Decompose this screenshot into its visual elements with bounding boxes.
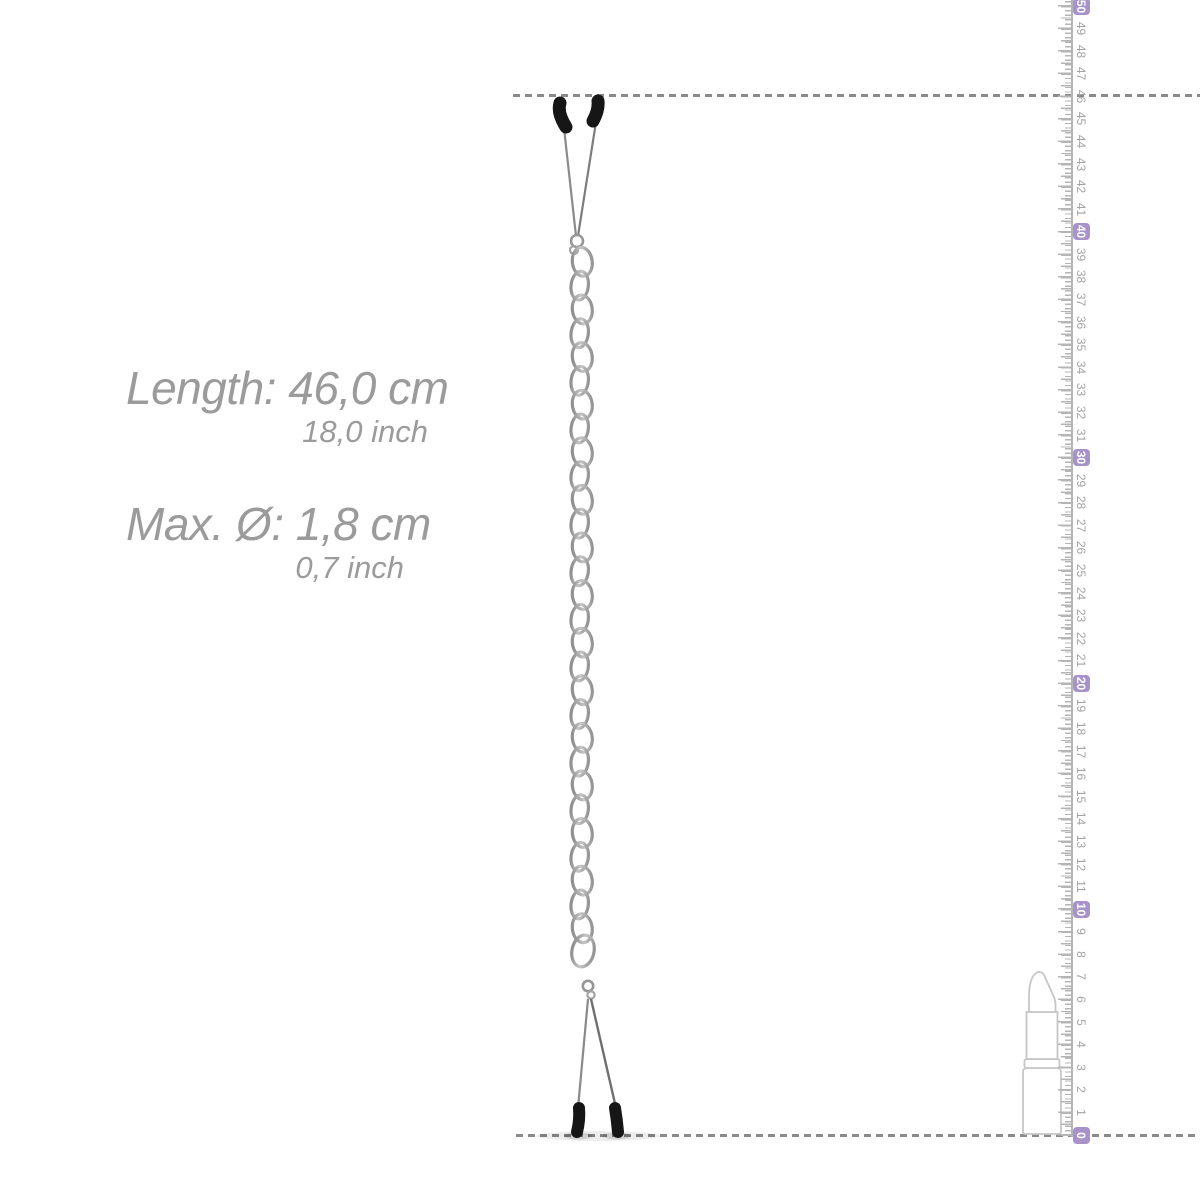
ruler-number-2: 2 <box>1073 1081 1090 1098</box>
clamp-tip <box>577 1108 579 1132</box>
ruler-number-23: 23 <box>1073 607 1090 624</box>
lipstick-base <box>1023 1068 1061 1134</box>
chain-link <box>569 746 590 777</box>
ruler-number-47: 47 <box>1073 65 1090 82</box>
ruler-mm-ticks <box>1065 1 1072 1136</box>
chain-link <box>571 342 594 373</box>
ruler-number-26: 26 <box>1073 539 1090 556</box>
ruler-number-39: 39 <box>1073 246 1090 263</box>
chain <box>569 246 593 943</box>
ruler-number-28: 28 <box>1073 494 1090 511</box>
ruler-number-29: 29 <box>1073 472 1090 489</box>
chain-link <box>569 604 590 635</box>
ruler-number-3: 3 <box>1073 1059 1090 1076</box>
wire-knot <box>583 981 593 991</box>
clamp-arm <box>578 999 588 1108</box>
wire-knot <box>571 235 583 247</box>
ruler-number-43: 43 <box>1073 156 1090 173</box>
lipstick-bullet <box>1029 972 1056 1012</box>
chain-link <box>571 484 594 515</box>
chain-link <box>569 556 590 587</box>
chain-link <box>571 627 594 658</box>
ruler-number-24: 24 <box>1073 585 1090 602</box>
ruler-number-36: 36 <box>1073 314 1090 331</box>
chain-link <box>569 508 590 539</box>
chain-link <box>569 413 590 444</box>
ruler-number-5: 5 <box>1073 1014 1090 1031</box>
ruler-number-41: 41 <box>1073 201 1090 218</box>
ruler-number-37: 37 <box>1073 291 1090 308</box>
chain-link <box>569 794 590 825</box>
chain-link <box>569 318 590 349</box>
length-value: Length: 46,0 cm <box>126 364 458 412</box>
chain-link <box>571 389 594 420</box>
ruler-number-34: 34 <box>1073 359 1090 376</box>
ruler-number-8: 8 <box>1073 946 1090 963</box>
bottom-clamp <box>569 933 618 1132</box>
ruler-number-48: 48 <box>1073 43 1090 60</box>
ruler-cm: 0123456789101112131415161718192021222324… <box>0 0 1200 1200</box>
ruler-badge-20: 20 <box>1073 675 1090 692</box>
wire-knot <box>570 246 578 254</box>
clamp-tip <box>615 1108 618 1132</box>
ruler-number-22: 22 <box>1073 630 1090 647</box>
ruler-badge-50: 50 <box>1073 0 1090 15</box>
ruler-number-31: 31 <box>1073 427 1090 444</box>
ruler-number-27: 27 <box>1073 517 1090 534</box>
ruler-number-21: 21 <box>1073 652 1090 669</box>
ruler-halfcm-ticks <box>1061 6 1072 1136</box>
ruler-number-18: 18 <box>1073 720 1090 737</box>
ruler-number-33: 33 <box>1073 381 1090 398</box>
ruler-number-38: 38 <box>1073 268 1090 285</box>
ruler-number-13: 13 <box>1073 833 1090 850</box>
chain-link <box>569 889 590 920</box>
ruler-number-12: 12 <box>1073 856 1090 873</box>
ruler-badge-30: 30 <box>1073 449 1090 466</box>
ruler-badge-10: 10 <box>1073 901 1090 918</box>
chain-link <box>571 865 594 896</box>
ruler-number-35: 35 <box>1073 336 1090 353</box>
chain-end-link <box>569 933 597 969</box>
chain-link <box>571 580 594 611</box>
chain-link <box>569 270 590 301</box>
chain-link <box>571 722 594 753</box>
ruler-badge-40: 40 <box>1073 223 1090 240</box>
ruler-number-15: 15 <box>1073 788 1090 805</box>
diameter-spec: Max. Ø: 1,8 cm 0,7 inch <box>126 500 426 583</box>
ruler-number-25: 25 <box>1073 562 1090 579</box>
length-value-inch: 18,0 inch <box>126 416 458 447</box>
diameter-value: Max. Ø: 1,8 cm <box>126 500 426 548</box>
ruler-number-6: 6 <box>1073 991 1090 1008</box>
length-spec: Length: 46,0 cm 18,0 inch <box>126 364 458 447</box>
chain-link <box>571 294 594 325</box>
clamp-tip <box>559 103 566 127</box>
ruler-cm-ticks <box>1058 5 1072 1136</box>
ruler-number-14: 14 <box>1073 810 1090 827</box>
chain-link <box>569 651 590 682</box>
ruler-number-1: 1 <box>1073 1104 1090 1121</box>
ruler-number-42: 42 <box>1073 178 1090 195</box>
ruler-number-45: 45 <box>1073 110 1090 127</box>
ruler-number-7: 7 <box>1073 968 1090 985</box>
chain-link <box>571 818 594 849</box>
chain-link <box>569 366 590 397</box>
ruler-number-17: 17 <box>1073 743 1090 760</box>
clamp-tip <box>593 101 598 121</box>
ruler-number-19: 19 <box>1073 697 1090 714</box>
wire-knot <box>587 991 594 998</box>
bottom-guide-line <box>516 1134 1200 1137</box>
ruler-number-9: 9 <box>1073 923 1090 940</box>
top-clamp <box>559 101 598 254</box>
chain-link <box>571 246 594 277</box>
chain-link <box>571 770 594 801</box>
lipstick-icon <box>1023 972 1061 1134</box>
clamp-arm <box>564 128 576 236</box>
lipstick-tube <box>1027 1012 1058 1059</box>
chain-link <box>571 437 594 468</box>
top-guide-line <box>513 94 1200 97</box>
lipstick-collar <box>1025 1059 1060 1068</box>
ruler-number-44: 44 <box>1073 133 1090 150</box>
ruler-baseline <box>1071 0 1073 1137</box>
clamp-arm <box>578 122 596 236</box>
ruler-number-49: 49 <box>1073 20 1090 37</box>
ruler-number-32: 32 <box>1073 404 1090 421</box>
measurement-infographic: Length: 46,0 cm 18,0 inch Max. Ø: 1,8 cm… <box>0 0 1200 1200</box>
clamp-arm <box>591 999 616 1108</box>
chain-link <box>571 675 594 706</box>
chain-link <box>571 532 594 563</box>
ruler-number-4: 4 <box>1073 1036 1090 1053</box>
diameter-value-inch: 0,7 inch <box>126 552 426 583</box>
chain-link <box>569 842 590 873</box>
chain-link <box>571 913 594 944</box>
ruler-number-11: 11 <box>1073 878 1090 895</box>
chain-link <box>569 699 590 730</box>
product-photo <box>0 0 1200 1200</box>
chain-link <box>569 461 590 492</box>
ruler-number-16: 16 <box>1073 765 1090 782</box>
